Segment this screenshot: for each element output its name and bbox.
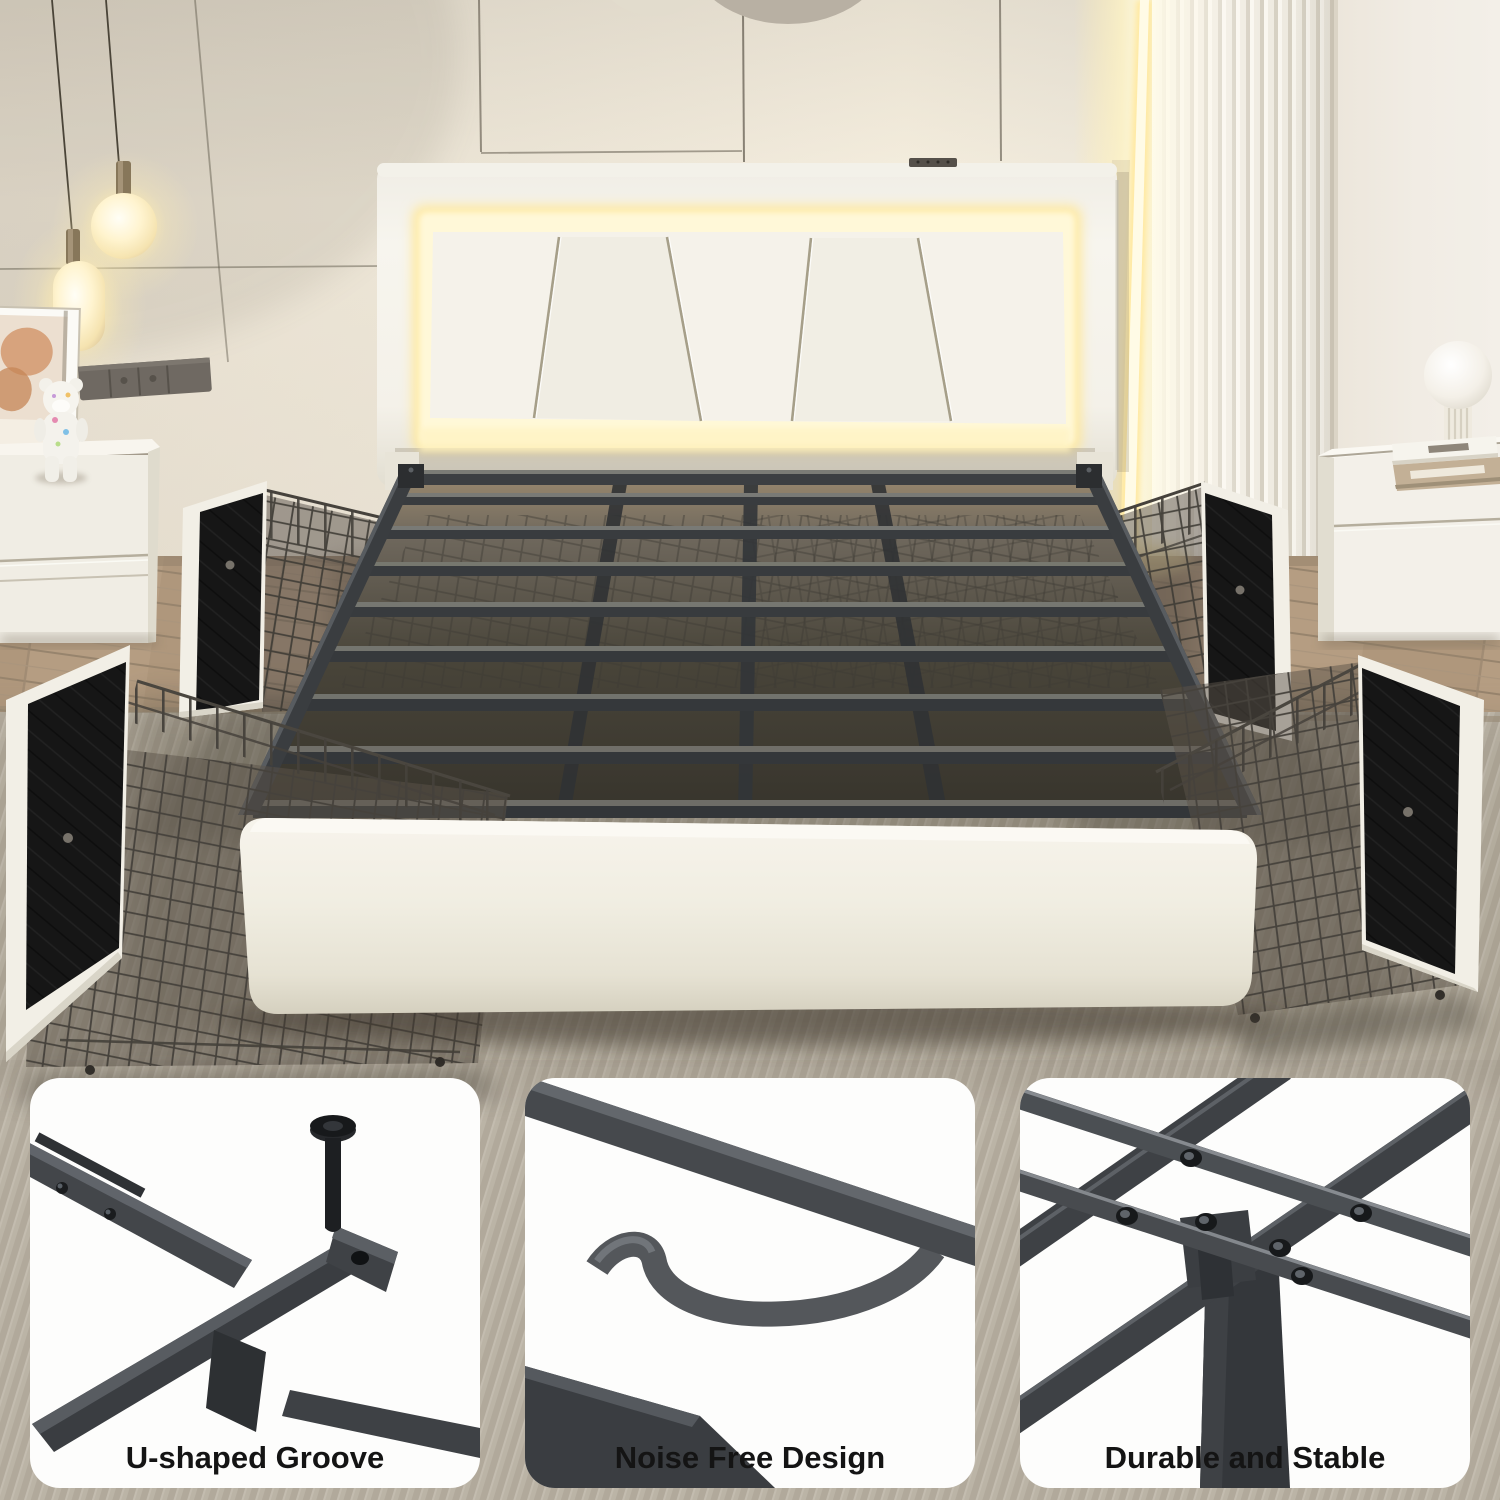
svg-text:Durable and Stable: Durable and Stable xyxy=(1105,1440,1386,1475)
svg-text:Noise Free Design: Noise Free Design xyxy=(615,1440,885,1475)
svg-text:U-shaped Groove: U-shaped Groove xyxy=(126,1440,384,1475)
